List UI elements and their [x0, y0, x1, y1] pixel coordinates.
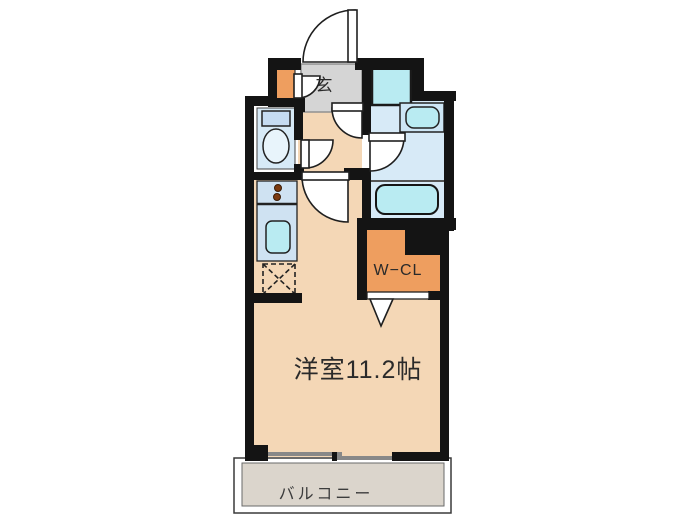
- kitchen-sink-icon: [266, 221, 290, 253]
- wall-toilet-top: [268, 98, 298, 107]
- walk-in-closet-label: W−CL: [374, 262, 423, 279]
- wash-basin-icon: [406, 107, 439, 128]
- toilet-tank-icon: [262, 111, 290, 126]
- wall-toilet-bottom: [254, 172, 298, 180]
- wall-wcl-left: [357, 218, 367, 300]
- wall-wcl-bottom-right: [428, 291, 449, 300]
- wall-right-lower: [440, 230, 449, 461]
- wall-bath-wcl-divider: [358, 218, 456, 230]
- wall-right-upper: [444, 91, 454, 231]
- floorplan-page: 玄 W−CL 洋室11.2帖 バルコニー: [0, 0, 700, 525]
- window-center-stile: [332, 452, 337, 461]
- bathtub-icon: [376, 185, 438, 214]
- main-room-label: 洋室11.2帖: [294, 356, 423, 384]
- washing-machine-space-icon: [372, 68, 411, 105]
- wall-bottom-left-stub: [254, 445, 268, 461]
- entrance-label: 玄: [316, 76, 333, 95]
- wall-entrance-washroom: [362, 58, 371, 135]
- wall-bottom-right: [392, 452, 449, 461]
- entrance-door-icon: [303, 10, 357, 62]
- wall-left-main: [245, 96, 254, 461]
- stove-burner-icon: [275, 185, 282, 192]
- toilet-bowl-icon: [263, 129, 289, 163]
- wall-toilet-right-upper: [294, 107, 303, 140]
- shoe-cabinet: [276, 67, 295, 100]
- wall-kitchen-bottom: [254, 293, 302, 303]
- floorplan-drawing: 玄 W−CL 洋室11.2帖 バルコニー: [0, 0, 700, 525]
- stove-burner-icon: [274, 194, 281, 201]
- balcony-label: バルコニー: [279, 486, 374, 503]
